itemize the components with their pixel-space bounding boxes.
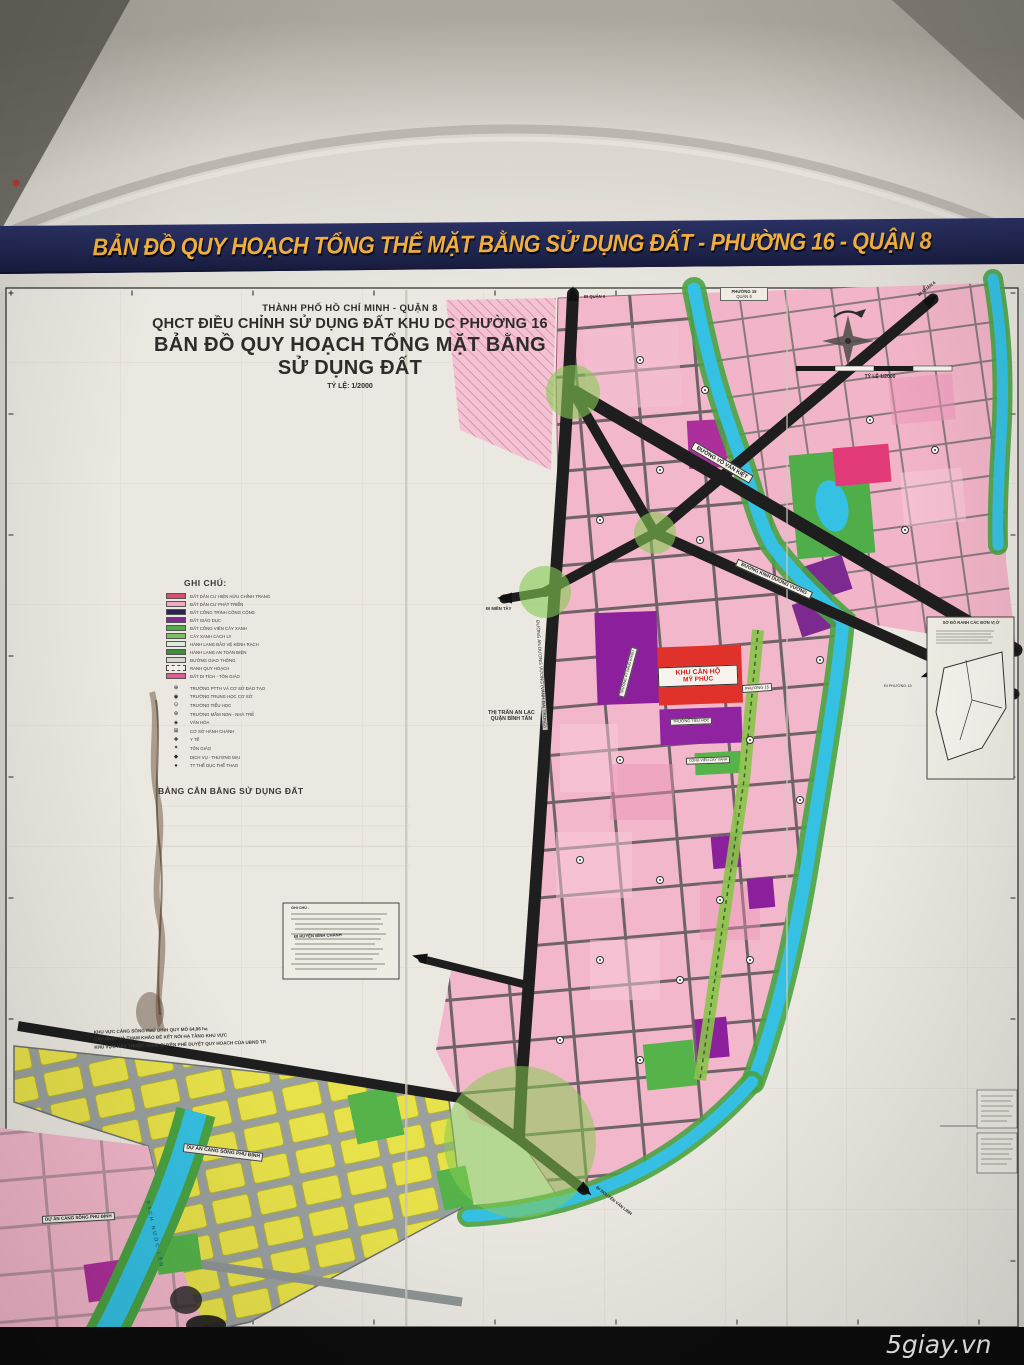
legend-item: HÀNH LANG AN TOÀN ĐIỆN (166, 648, 306, 656)
my-phuc-label-box: KHU CĂN HỘ MỸ PHÚC (658, 665, 739, 688)
neighbour-district-name: QUẬN 6 (721, 294, 767, 299)
legend-chip (166, 617, 186, 623)
banner: BẢN ĐỒ QUY HOẠCH TỔNG THỂ MẶT BẰNG SỬ DỤ… (0, 218, 1024, 272)
sports-icon: ● (166, 763, 186, 769)
kindergarten-icon: ⊛ (166, 711, 186, 717)
legend-chip (166, 657, 186, 663)
legend-chip (166, 625, 186, 631)
legend-chip (166, 601, 186, 607)
legend-chip (166, 633, 186, 639)
health-icon: ✚ (166, 737, 186, 743)
legend-item: CÂY XANH CÁCH LY (166, 632, 306, 640)
dir-di-mien-tay: ĐI MIỀN TÂY (486, 606, 511, 611)
legend-item: ĐẤT CÔNG TRÌNH CÔNG CỘNG (166, 608, 306, 616)
minimap-exit-label: ĐI PHƯỜNG 15 (884, 684, 912, 688)
legend-item: ĐẤT CÔNG VIÊN CÂY XANH (166, 624, 306, 632)
scale-caption: TỶ LỆ 1/2000 (800, 374, 960, 380)
legend-item: RANH QUY HOẠCH (166, 664, 306, 672)
photo-bottom-strip (0, 1327, 1024, 1365)
legend-item: HÀNH LANG BẢO VỆ KÊNH RẠCH (166, 640, 306, 648)
school-es-icon: ⊙ (166, 702, 186, 708)
scale-bar (796, 366, 952, 371)
legend: GHI CHÚ: ĐẤT DÂN CƯ HIỆN HỮU CHỈNH TRANG… (166, 578, 306, 770)
commerce-icon: ◆ (166, 754, 186, 760)
legend-chip (166, 673, 186, 679)
legend-symbol-item: ⊕TRƯỜNG PTTH VÀ CƠ SỞ ĐÀO TẠO (166, 684, 306, 693)
minimap-title: SƠ ĐỒ RANH CÁC ĐƠN VỊ Ở (927, 620, 1015, 625)
school-hs-icon: ⊕ (166, 685, 186, 691)
legend-item: ĐƯỜNG GIAO THÔNG (166, 656, 306, 664)
photo-of-planning-map: BẢN ĐỒ QUY HOẠCH TỔNG THỂ MẶT BẰNG SỬ DỤ… (0, 0, 1024, 1365)
legend-item: ĐẤT DÂN CƯ PHÁT TRIỂN (166, 600, 306, 608)
map-title-sub: QHCT ĐIỀU CHỈNH SỬ DỤNG ĐẤT KHU DC PHƯỜN… (140, 316, 560, 332)
legend-chip-dashed (166, 665, 186, 671)
block-crimson (832, 444, 891, 487)
religion-icon: ✦ (166, 745, 186, 751)
map-title-block: THÀNH PHỐ HỒ CHÍ MINH - QUẬN 8 QHCT ĐIỀU… (140, 303, 560, 390)
legend-symbol-item: ⊙TRƯỜNG TIỂU HỌC (166, 701, 306, 710)
legend-symbol-item: ◉TRƯỜNG TRUNG HỌC CƠ SỞ (166, 693, 306, 702)
map-title-main: BẢN ĐỒ QUY HOẠCH TỔNG MẶT BẰNG SỬ DỤNG Đ… (140, 334, 560, 380)
legend-symbol-item: ⊛TRƯỜNG MẦM NON - NHÀ TRẺ (166, 710, 306, 719)
legend-symbol-item: ⊞CƠ SỞ HÀNH CHÁNH (166, 727, 306, 736)
map-canvas (0, 0, 1024, 1365)
legend-item: ĐẤT DI TÍCH - TÔN GIÁO (166, 672, 306, 680)
legend-title: GHI CHÚ: (184, 578, 306, 588)
neighbour-ward-box: PHƯỜNG 15 QUẬN 6 (720, 287, 768, 301)
legend-symbol-item: ✦TÔN GIÁO (166, 744, 306, 753)
map-title-scale: TỶ LỆ: 1/2000 (140, 383, 560, 390)
legend-symbol-item: ◆DỊCH VỤ - THƯƠNG MẠI (166, 753, 306, 762)
legend-symbol-item: ◈VĂN HÓA (166, 718, 306, 727)
legend-item: ĐẤT GIÁO DỤC (166, 616, 306, 624)
dir-di-quan6: ĐI QUẬN 6 (584, 294, 605, 299)
watermark: 5giay.vn (886, 1330, 991, 1359)
banner-title: BẢN ĐỒ QUY HOẠCH TỔNG THỂ MẶT BẰNG SỬ DỤ… (93, 228, 932, 263)
note-box (283, 903, 399, 979)
red-pin-dot (13, 180, 20, 187)
legend-symbol-item: ✚Y TẾ (166, 736, 306, 745)
legend-chip (166, 649, 186, 655)
balance-table-title: BẢNG CÂN BẰNG SỬ DỤNG ĐẤT (158, 786, 304, 796)
map-title-city: THÀNH PHỐ HỒ CHÍ MINH - QUẬN 8 (140, 303, 560, 314)
culture-icon: ◈ (166, 720, 186, 726)
an-lac-label: THỊ TRẤN AN LẠC QUẬN BÌNH TÂN (488, 710, 535, 722)
legend-chip (166, 641, 186, 647)
note-box-title: GHI CHÚ : (291, 906, 309, 910)
legend-chip (166, 609, 186, 615)
block-school-south (659, 707, 742, 746)
legend-item: ĐẤT DÂN CƯ HIỆN HỮU CHỈNH TRANG (166, 592, 306, 600)
legend-symbol-item: ●TT THỂ DỤC THỂ THAO (166, 761, 306, 770)
big-interchange-circle (444, 1066, 596, 1218)
minimap-box (927, 617, 1014, 779)
admin-icon: ⊞ (166, 728, 186, 734)
school-ms-icon: ◉ (166, 694, 186, 700)
legend-chip (166, 593, 186, 599)
school-chip-2: TRƯỜNG TIỂU HỌC (670, 717, 713, 726)
